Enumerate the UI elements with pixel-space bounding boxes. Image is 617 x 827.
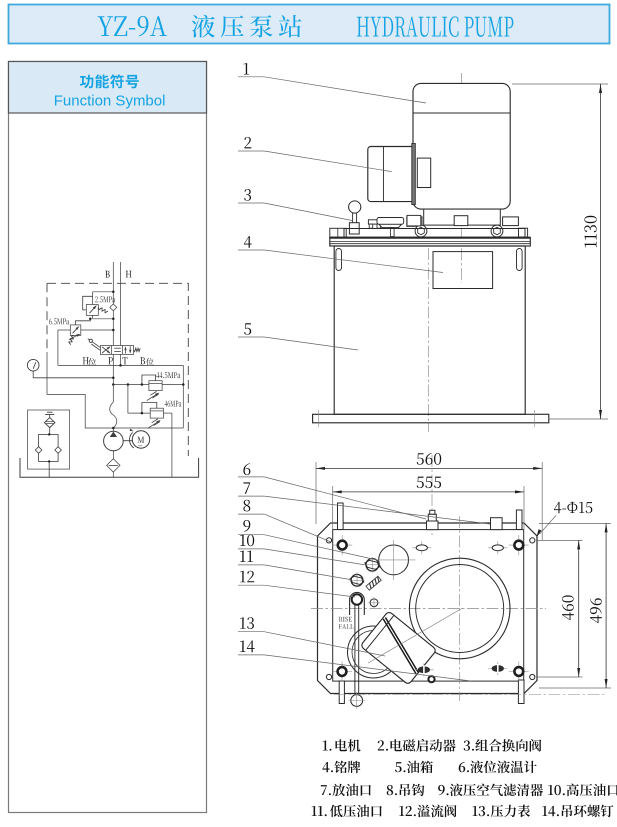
svg-text:Function Symbol: Function Symbol [54,93,166,110]
